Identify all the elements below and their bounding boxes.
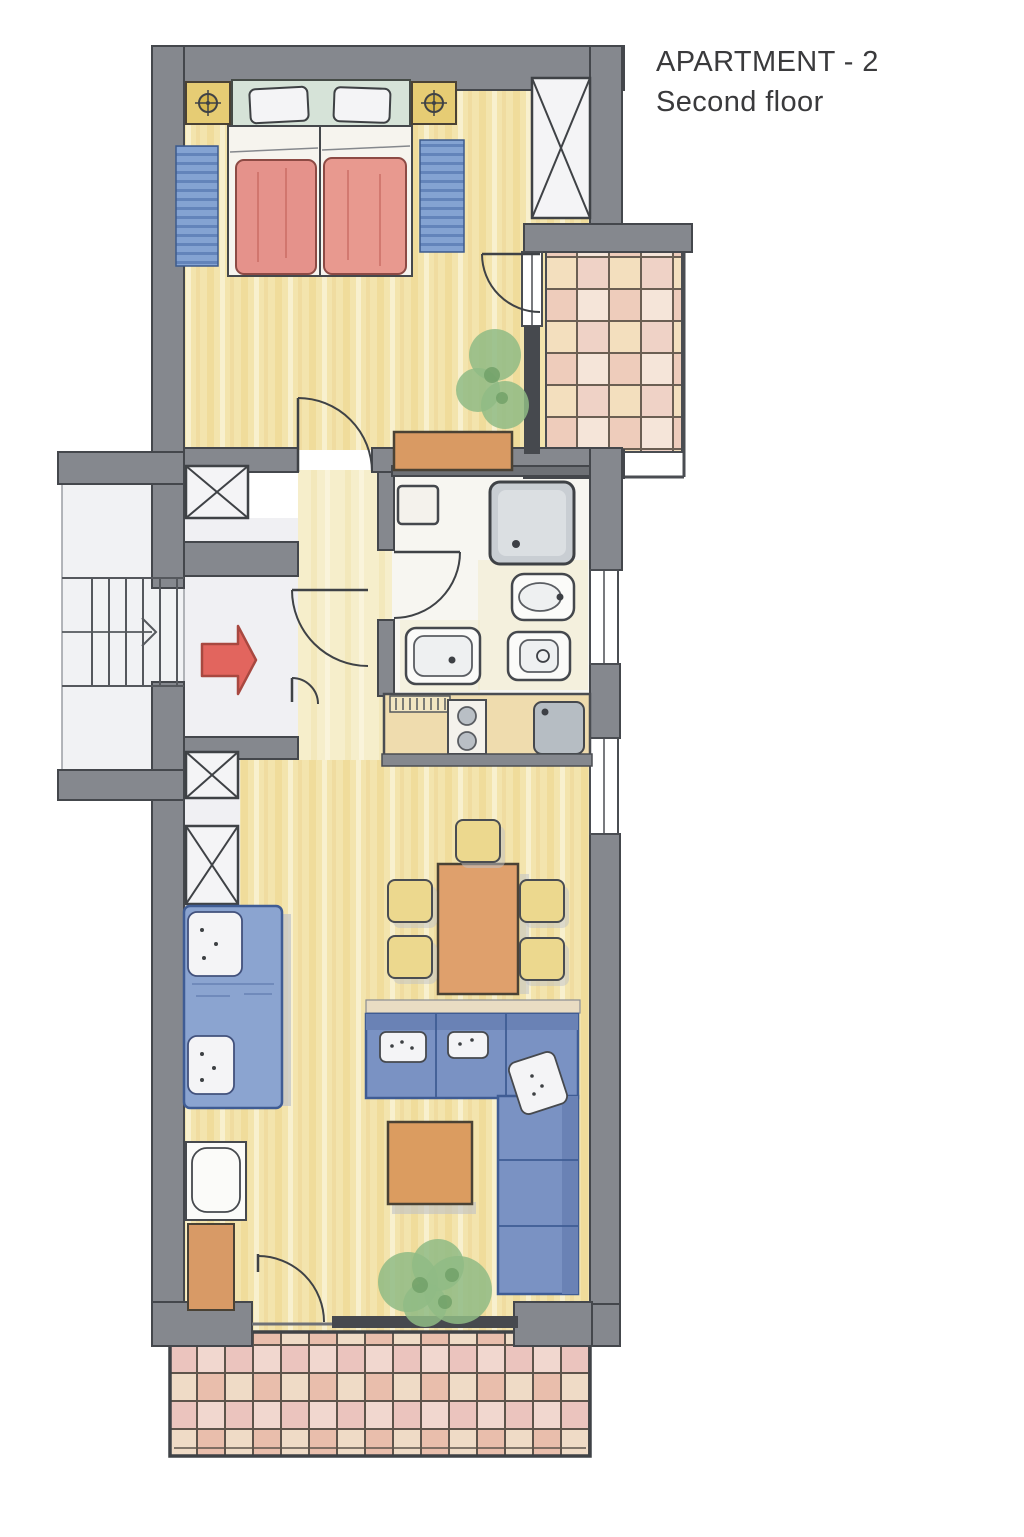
bedside-rug-right	[420, 140, 464, 252]
window-right-1	[590, 570, 618, 664]
wall-right-b	[590, 664, 620, 738]
sofa-back-edge	[366, 1014, 578, 1030]
desk-with-chair	[186, 1142, 246, 1220]
sofa-right-edge	[562, 1096, 578, 1294]
wardrobe-shaft-bedroom	[532, 78, 590, 218]
entrance-upper-gap-floor	[184, 518, 298, 544]
dining-chair	[520, 938, 564, 980]
kitchen-sink	[534, 702, 584, 754]
wall-bottom-right-chunk	[514, 1302, 592, 1346]
dish-rack	[390, 696, 450, 712]
wall-entrance-top	[184, 542, 298, 576]
bed-blanket-left	[236, 160, 316, 274]
lower-balcony	[170, 1332, 590, 1456]
wall-right-corner	[590, 1304, 620, 1346]
nightstand-with-lamp-right	[412, 82, 456, 124]
wall-upper-balcony-top	[524, 224, 692, 252]
plan-title: APARTMENT - 2 Second floor	[656, 42, 879, 122]
wall-bath-left-lower	[378, 620, 394, 696]
lower-balcony-tiles	[170, 1332, 590, 1456]
toilet	[512, 574, 574, 620]
coffee-table	[388, 1122, 472, 1204]
daybed	[184, 906, 291, 1108]
daybed-pillow-bottom	[188, 1036, 234, 1094]
washing-machine	[398, 486, 438, 524]
dining-chair	[388, 880, 432, 922]
upper-balcony	[546, 224, 684, 477]
double-bed	[228, 80, 412, 276]
window-right-2	[590, 738, 618, 834]
plan-title-line1: APARTMENT - 2	[656, 42, 879, 82]
dining-chair	[456, 820, 500, 862]
wall-right-c	[590, 834, 620, 1304]
bed-blanket-right	[324, 158, 406, 274]
stove	[448, 700, 486, 754]
shower	[490, 482, 574, 564]
daybed-shadow	[282, 914, 291, 1106]
washbasin	[406, 628, 480, 684]
stove-burner	[458, 732, 476, 750]
plan-title-line2: Second floor	[656, 82, 879, 122]
shower-drain	[512, 540, 520, 548]
floor-plan-page: APARTMENT - 2 Second floor	[0, 0, 1024, 1537]
shaft-hall-upper	[186, 466, 248, 518]
wall-corridor-upper	[58, 452, 184, 484]
sideboard	[394, 432, 512, 470]
shaft-living-lower	[186, 826, 238, 904]
cabinet	[188, 1224, 234, 1310]
dining-table	[438, 864, 518, 994]
wall-bath-left-upper	[378, 472, 394, 550]
kitchen	[382, 694, 592, 766]
kitchen-counter-front-edge	[382, 754, 592, 766]
bed-pillow-right	[333, 87, 390, 123]
bedside-rug-left	[176, 146, 218, 266]
dining-chair	[388, 936, 432, 978]
wall-right-a	[590, 448, 622, 570]
stove-burner	[458, 707, 476, 725]
window-bedroom-balcony	[522, 252, 542, 326]
wall-bedroom-right	[590, 46, 622, 250]
bidet	[508, 632, 570, 680]
glass-door-upper-balcony	[524, 326, 540, 454]
upper-balcony-tiles	[546, 252, 682, 452]
floor-plan-drawing	[0, 0, 1024, 1537]
bed-pillow-left	[249, 87, 309, 124]
washbasin-tap	[449, 657, 456, 664]
nightstand-with-lamp-left	[186, 82, 230, 124]
sofa-back-shelf	[366, 1000, 580, 1013]
shaft-living-upper	[186, 752, 238, 798]
wall-left-mid	[152, 482, 184, 588]
wall-corridor-lower	[58, 770, 184, 800]
dining-chair	[520, 880, 564, 922]
